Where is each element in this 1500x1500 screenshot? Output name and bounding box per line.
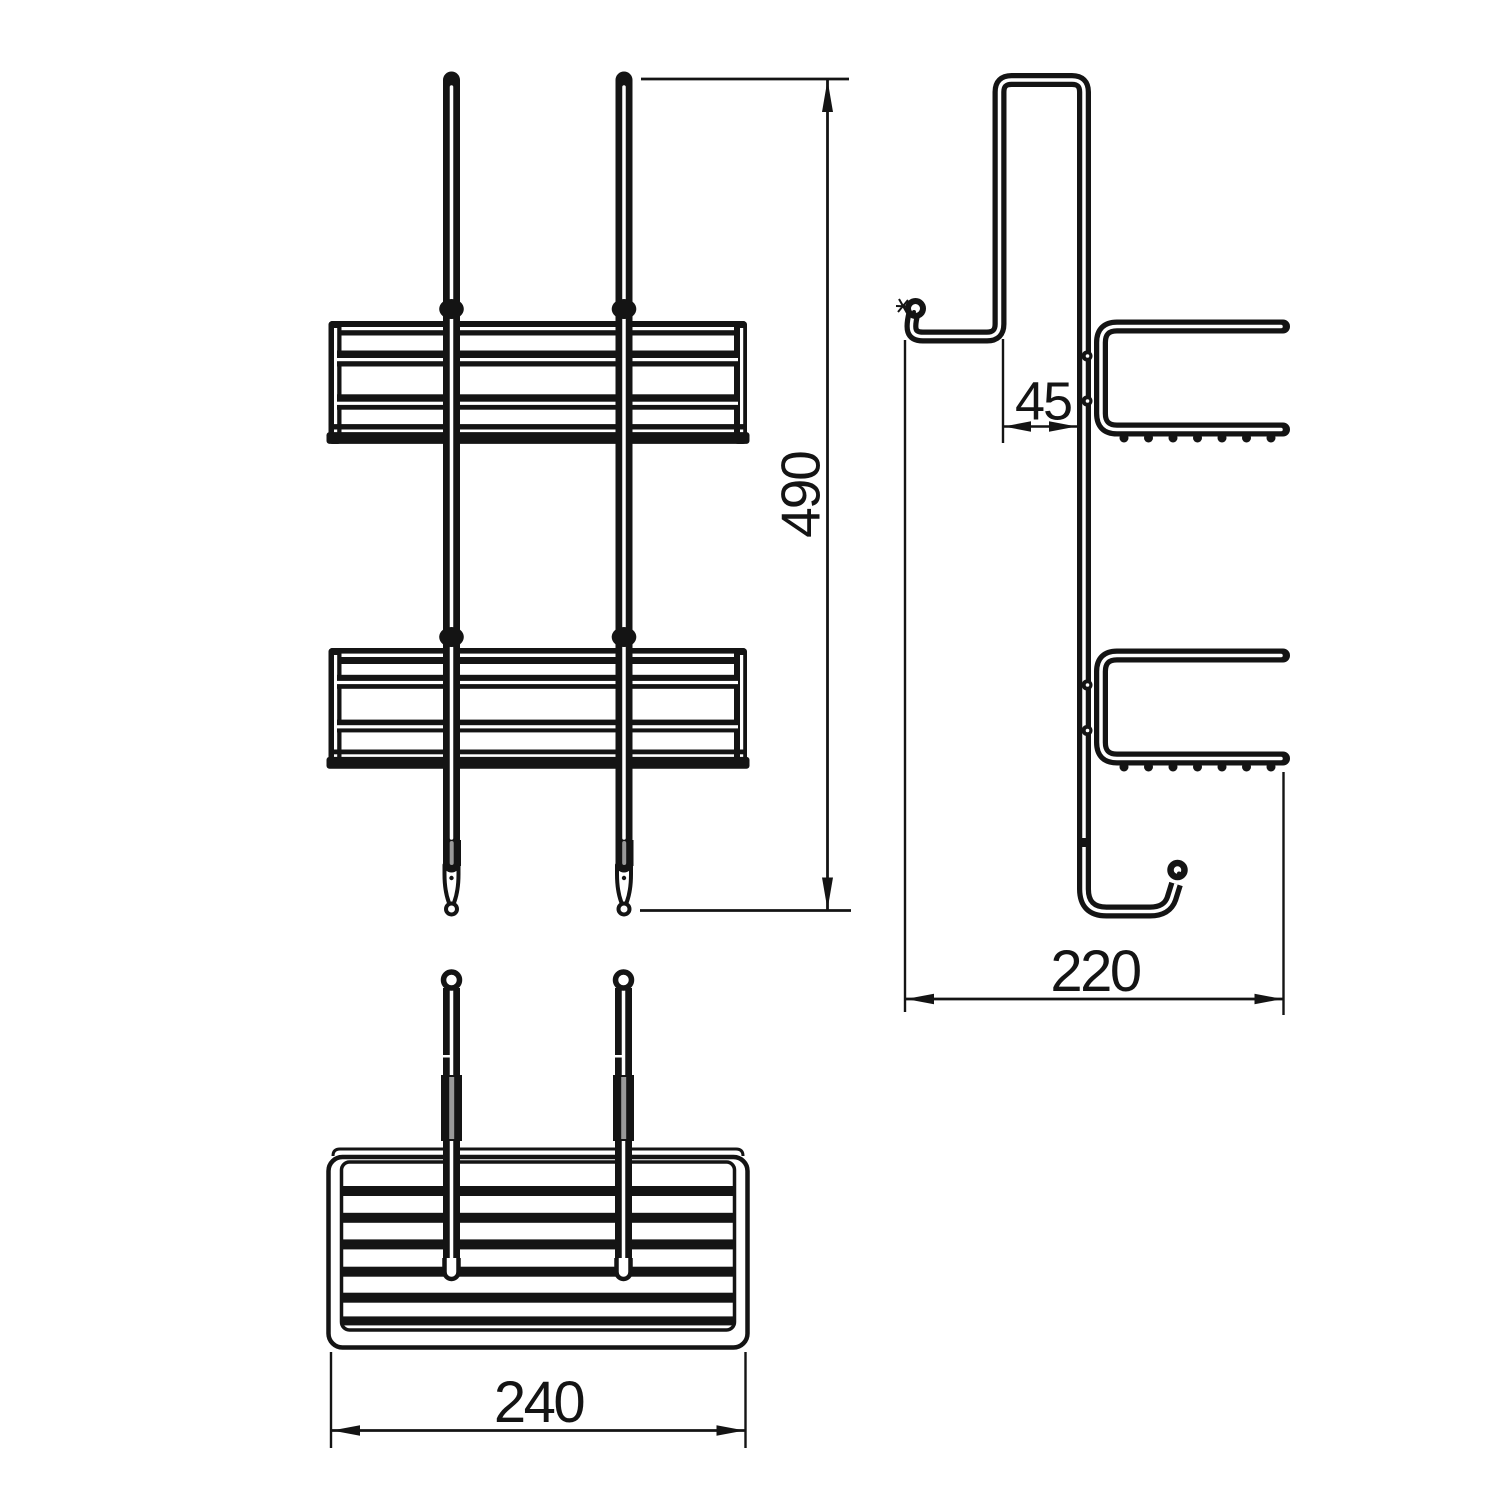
svg-text:240: 240 [494,1370,584,1435]
svg-text:220: 220 [1050,939,1140,1004]
svg-text:490: 490 [770,452,832,538]
svg-text:45: 45 [1015,372,1071,432]
